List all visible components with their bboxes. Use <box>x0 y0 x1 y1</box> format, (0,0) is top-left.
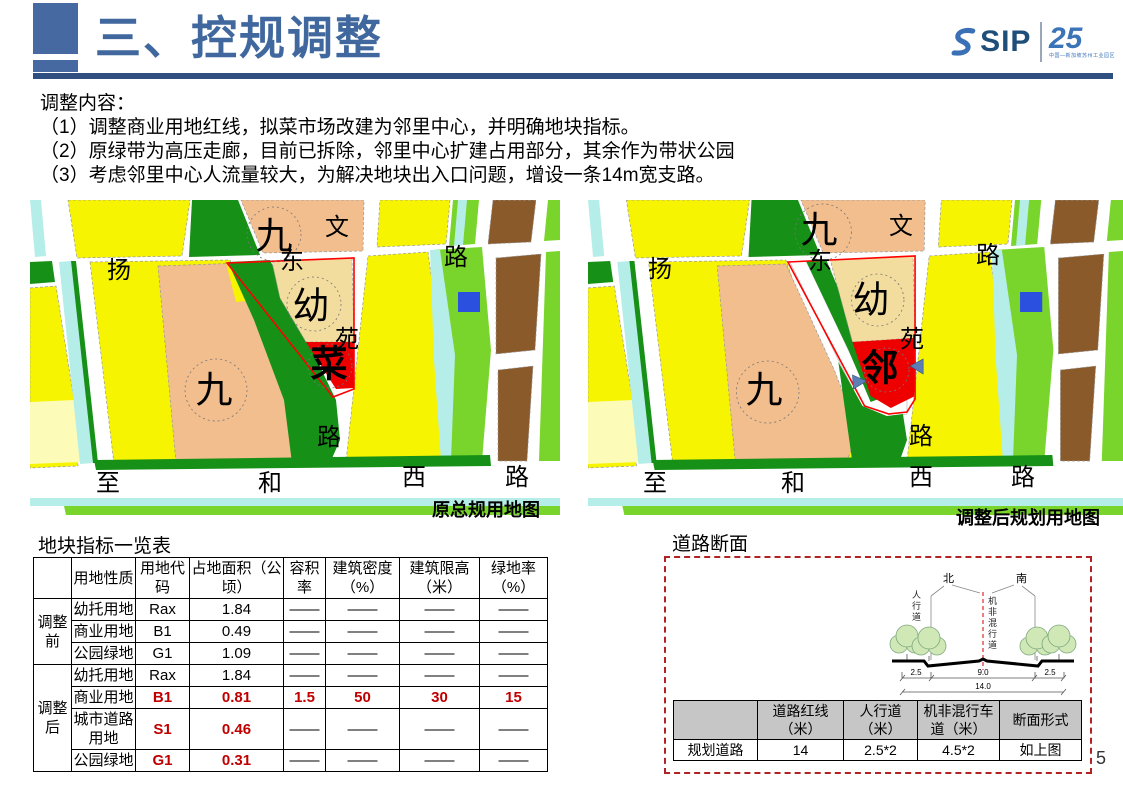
cell: 商业用地 <box>72 621 136 643</box>
sip-text: SIP <box>980 25 1031 59</box>
map-label-至: 至 <box>643 472 667 496</box>
table-row: 公园绿地 G1 1.09 —— —— —— —— <box>34 643 548 665</box>
cell: —— <box>326 709 400 750</box>
map-label-路: 路 <box>1011 466 1035 490</box>
map-label-扬: 扬 <box>648 258 672 282</box>
header-cell: 建筑密度（%） <box>326 558 400 599</box>
header-cell: 用地代码 <box>136 558 190 599</box>
cell: 1.09 <box>190 643 284 665</box>
map-label-苑: 苑 <box>900 328 924 352</box>
cell: —— <box>480 621 548 643</box>
cell: 幼托用地 <box>72 599 136 621</box>
map-label-路: 路 <box>909 425 933 449</box>
cell: —— <box>480 599 548 621</box>
map-adjusted-plan: 九扬东文路幼苑邻九路至和西路 <box>588 200 1123 515</box>
road-cross-section-diagram: 北 南 2.5 9.0 2.5 <box>888 568 1078 698</box>
cell: Rax <box>136 599 190 621</box>
cell: 0.31 <box>190 750 284 772</box>
map-label-菜: 菜 <box>311 346 348 383</box>
cell: —— <box>326 643 400 665</box>
map-label-邻: 邻 <box>862 350 899 387</box>
logo-divider <box>1040 22 1042 62</box>
table-row: 公园绿地 G1 0.31 —— —— —— —— <box>34 750 548 772</box>
cell: —— <box>480 709 548 750</box>
header-accent-square <box>33 3 78 54</box>
table-row: 城市道路用地 S1 0.46 —— —— —— —— <box>34 709 548 750</box>
cell: 幼托用地 <box>72 665 136 687</box>
cell: 0.46 <box>190 709 284 750</box>
cell: 15 <box>480 687 548 709</box>
cell: —— <box>400 709 480 750</box>
cell: —— <box>400 750 480 772</box>
cell: —— <box>326 665 400 687</box>
map-label-西: 西 <box>402 466 426 490</box>
road-section-box: 北 南 2.5 9.0 2.5 <box>664 556 1092 774</box>
cell: —— <box>400 665 480 687</box>
cell: —— <box>400 599 480 621</box>
map-label-路: 路 <box>317 426 341 450</box>
page-number: 5 <box>1096 748 1106 769</box>
cell: 50 <box>326 687 400 709</box>
group-cell-before: 调整前 <box>34 599 72 665</box>
table-header-row: 道路红线（米） 人行道（米） 机非混行车道（米） 断面形式 <box>674 701 1082 740</box>
cell: —— <box>480 665 548 687</box>
map-label-和: 和 <box>781 472 805 496</box>
sip-logo: SIP 25 中国—新加坡苏州工业园区 <box>950 18 1115 66</box>
header-cell: 道路红线（米） <box>758 701 844 740</box>
header-cell: 用地性质 <box>72 558 136 599</box>
table-row: 商业用地 B1 0.81 1.5 50 30 15 <box>34 687 548 709</box>
cell: 0.49 <box>190 621 284 643</box>
table-row: 规划道路 14 2.5*2 4.5*2 如上图 <box>674 740 1082 761</box>
cell: —— <box>326 750 400 772</box>
header-cell <box>34 558 72 599</box>
adjustment-content: 调整内容： （1）调整商业用地红线，拟菜市场改建为邻里中心，并明确地块指标。 （… <box>40 92 735 188</box>
map-label-文: 文 <box>325 216 349 240</box>
map-caption-original: 原总规用地图 <box>30 496 540 522</box>
header-cell: 人行道（米） <box>844 701 918 740</box>
cell: 商业用地 <box>72 687 136 709</box>
adjustment-item-2: （2）原绿带为高压走廊，目前已拆除，邻里中心扩建占用部分，其余作为带状公园 <box>40 140 735 164</box>
header-cell: 机非混行车道（米） <box>918 701 1000 740</box>
cell: —— <box>400 643 480 665</box>
cell: —— <box>400 621 480 643</box>
map-label-路: 路 <box>976 244 1000 268</box>
map-label-东: 东 <box>280 250 304 274</box>
cell: —— <box>326 621 400 643</box>
utility-parcel-blue <box>1020 292 1042 312</box>
cell: G1 <box>136 643 190 665</box>
cell: 0.81 <box>190 687 284 709</box>
table-row: 调整前 幼托用地 Rax 1.84 —— —— —— —— <box>34 599 548 621</box>
anniversary-logo: 25 中国—新加坡苏州工业园区 <box>1049 26 1115 59</box>
header-rule <box>33 73 1113 79</box>
header-cell: 断面形式 <box>1000 701 1082 740</box>
page-title: 三、控规调整 <box>95 2 383 68</box>
map-label-和: 和 <box>258 472 282 496</box>
header-cell: 绿地率（%） <box>480 558 548 599</box>
cell: 30 <box>400 687 480 709</box>
header-accent-bar <box>33 60 78 72</box>
cell: 如上图 <box>1000 740 1082 761</box>
south-label: 南 <box>1016 572 1027 585</box>
cell: B1 <box>136 621 190 643</box>
cell: 4.5*2 <box>918 740 1000 761</box>
table-header-row: 用地性质 用地代码 占地面积（公顷） 容积率 建筑密度（%） 建筑限高（米） 绿… <box>34 558 548 599</box>
mixed-lane-label: 机非混行道 <box>986 596 999 651</box>
anniversary-number: 25 <box>1049 26 1115 52</box>
map-label-至: 至 <box>96 472 120 496</box>
cell: 14 <box>758 740 844 761</box>
sidewalk-label: 人行道 <box>910 590 923 623</box>
cell: 2.5*2 <box>844 740 918 761</box>
adjustment-item-1: （1）调整商业用地红线，拟菜市场改建为邻里中心，并明确地块指标。 <box>40 116 735 140</box>
map-label-九: 九 <box>746 372 783 409</box>
sip-s-icon <box>950 22 978 62</box>
road-parameters-table: 道路红线（米） 人行道（米） 机非混行车道（米） 断面形式 规划道路 14 2.… <box>673 700 1082 761</box>
cell: 1.84 <box>190 665 284 687</box>
cell: —— <box>284 750 326 772</box>
cell: 公园绿地 <box>72 643 136 665</box>
map-caption-adjusted: 调整后规划用地图 <box>588 504 1100 530</box>
cell: G1 <box>136 750 190 772</box>
north-label: 北 <box>943 572 954 585</box>
cell: B1 <box>136 687 190 709</box>
slide: 三、控规调整 SIP 25 中国—新加坡苏州工业园区 调整内容： （1）调整商业… <box>0 0 1123 794</box>
cell: S1 <box>136 709 190 750</box>
adjustment-intro: 调整内容： <box>40 92 735 116</box>
header-cell: 容积率 <box>284 558 326 599</box>
cell: —— <box>326 599 400 621</box>
plot-index-table: 用地性质 用地代码 占地面积（公顷） 容积率 建筑密度（%） 建筑限高（米） 绿… <box>33 557 548 772</box>
cell: —— <box>284 599 326 621</box>
dim-left: 2.5 <box>910 668 922 677</box>
map-label-九: 九 <box>196 372 233 409</box>
cell: Rax <box>136 665 190 687</box>
map-label-路: 路 <box>505 466 529 490</box>
row-label: 规划道路 <box>674 740 758 761</box>
table-row: 商业用地 B1 0.49 —— —— —— —— <box>34 621 548 643</box>
group-cell-after: 调整后 <box>34 665 72 772</box>
road-section-title: 道路断面 <box>672 529 748 556</box>
cell: 城市道路用地 <box>72 709 136 750</box>
map-label-九: 九 <box>801 212 838 249</box>
adjustment-item-3: （3）考虑邻里中心人流量较大，为解决地块出入口问题，增设一条14m宽支路。 <box>40 164 735 188</box>
land-use-map-svg <box>588 200 1123 515</box>
cell: —— <box>284 643 326 665</box>
dim-total: 14.0 <box>975 682 991 691</box>
map-label-路: 路 <box>444 246 468 270</box>
header-cell: 建筑限高（米） <box>400 558 480 599</box>
cell: —— <box>284 665 326 687</box>
cell: —— <box>480 643 548 665</box>
map-label-文: 文 <box>889 215 913 239</box>
plot-table-title: 地块指标一览表 <box>38 531 171 558</box>
map-original-plan: 九扬东文路幼苑菜九路至和西路 <box>30 200 560 515</box>
map-label-幼: 幼 <box>853 282 890 319</box>
dim-right: 2.5 <box>1044 668 1056 677</box>
map-label-幼: 幼 <box>293 288 330 325</box>
dim-mid: 9.0 <box>977 668 989 677</box>
cell: —— <box>480 750 548 772</box>
cell: 公园绿地 <box>72 750 136 772</box>
logo-tagline: 中国—新加坡苏州工业园区 <box>1049 52 1115 59</box>
map-label-西: 西 <box>909 466 933 490</box>
cell: —— <box>284 709 326 750</box>
cell: —— <box>284 621 326 643</box>
header-cell <box>674 701 758 740</box>
header-cell: 占地面积（公顷） <box>190 558 284 599</box>
table-row: 调整后 幼托用地 Rax 1.84 —— —— —— —— <box>34 665 548 687</box>
utility-parcel-blue <box>458 292 480 312</box>
cell: 1.5 <box>284 687 326 709</box>
cell: 1.84 <box>190 599 284 621</box>
map-label-东: 东 <box>808 250 832 274</box>
map-label-扬: 扬 <box>107 259 131 283</box>
